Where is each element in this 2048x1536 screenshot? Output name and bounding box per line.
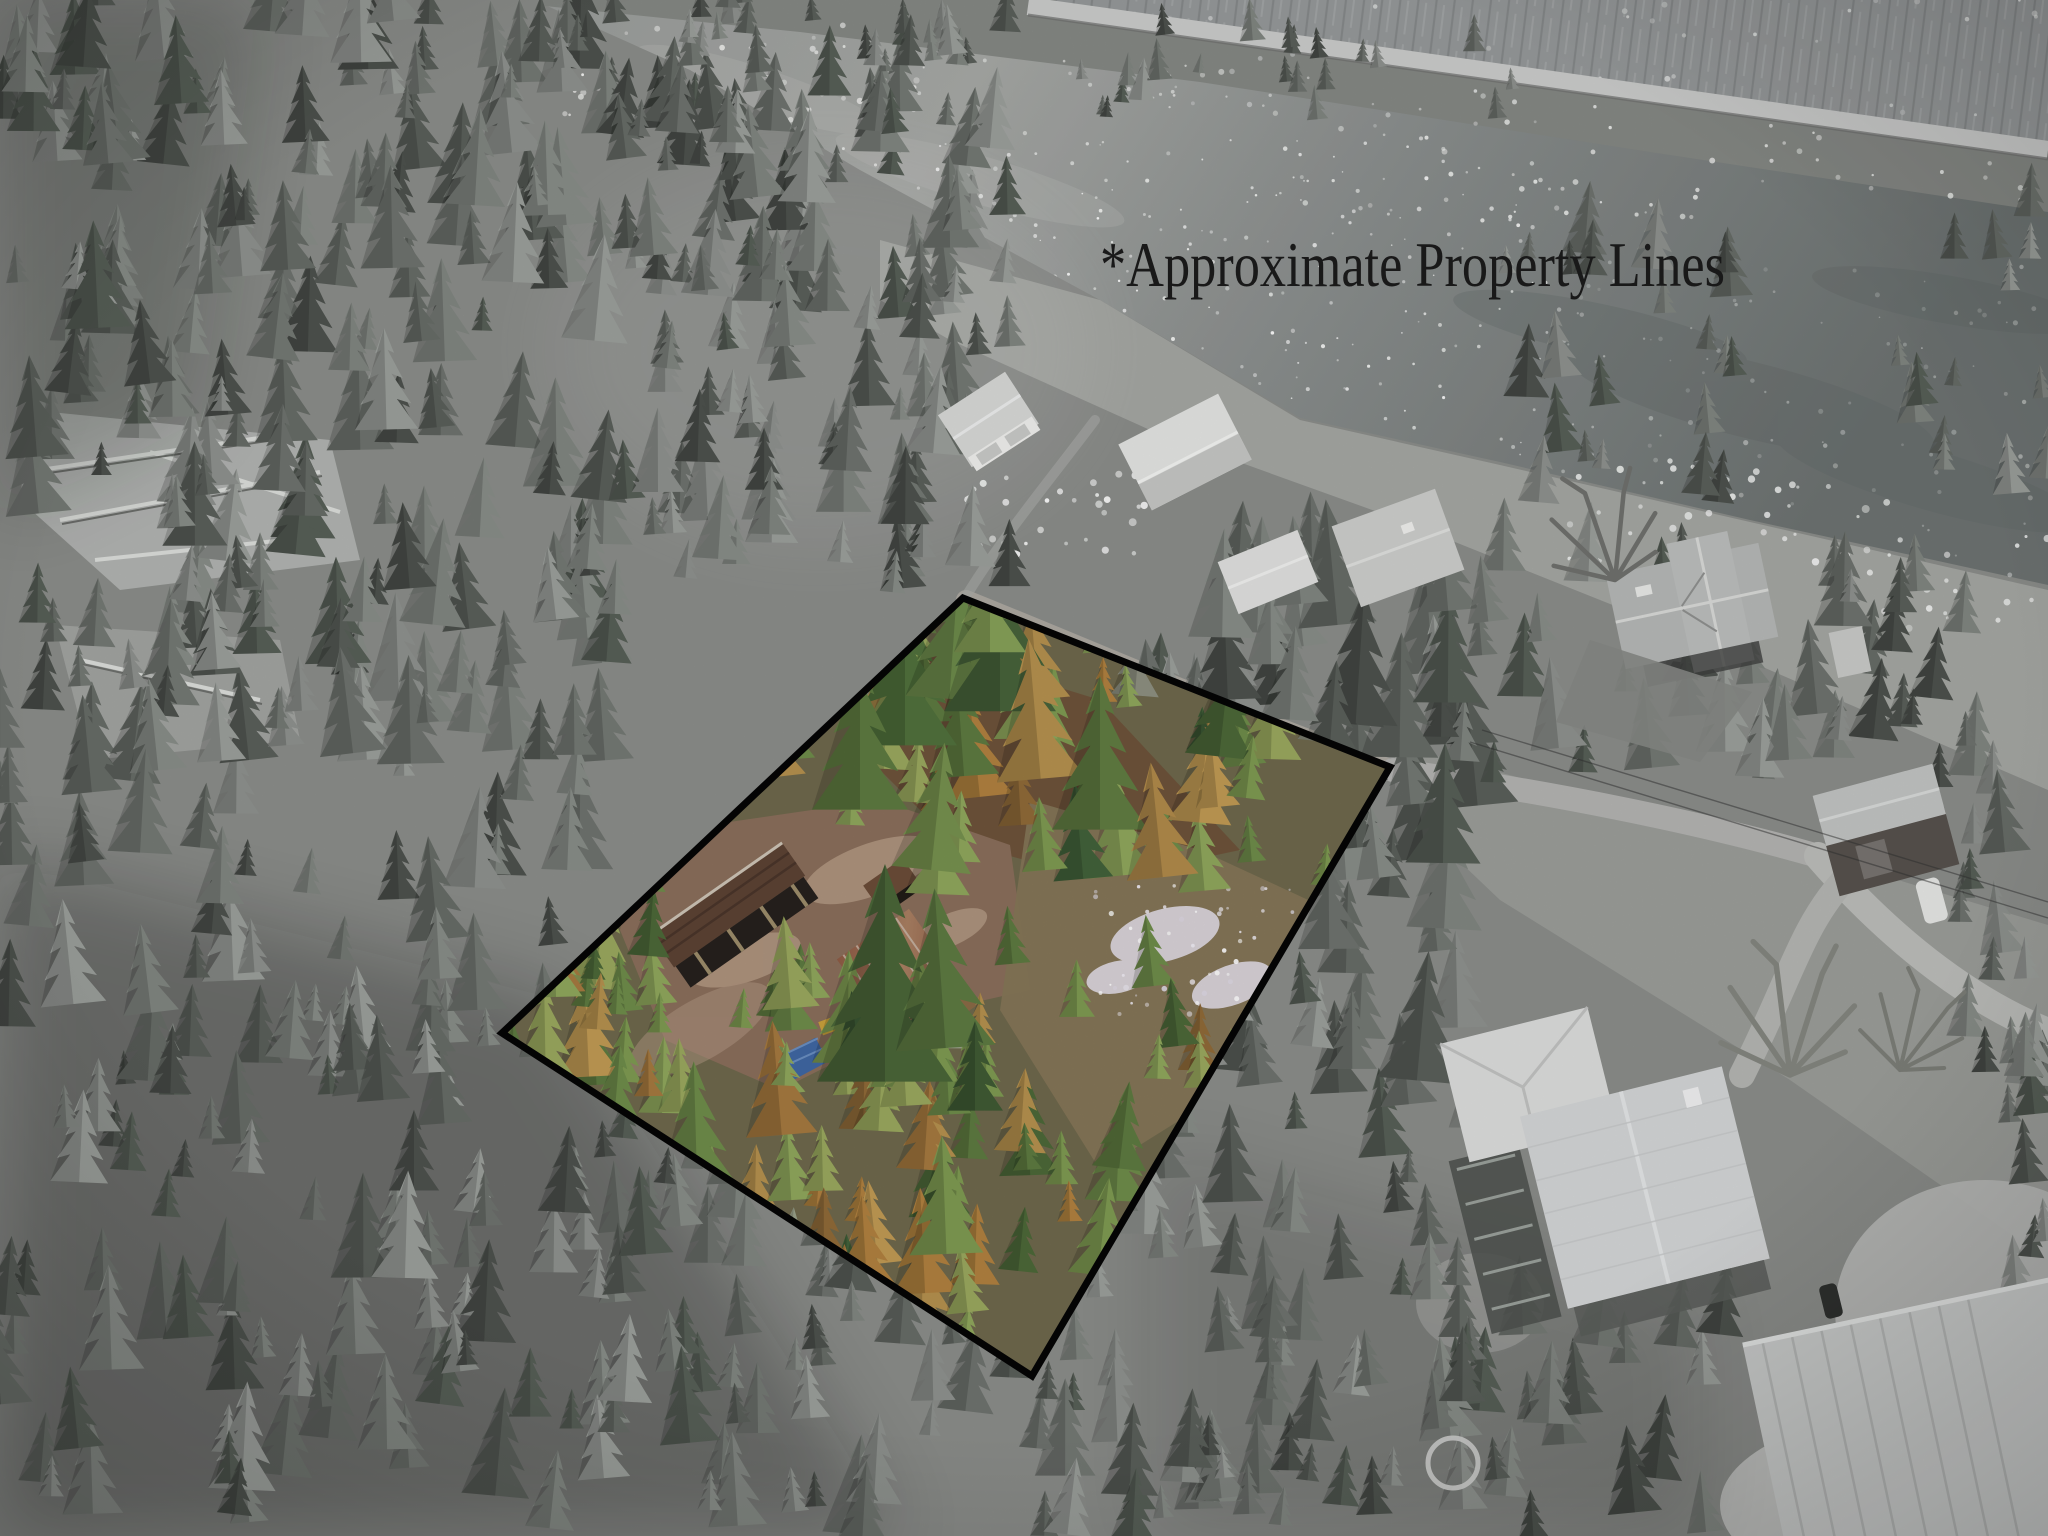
speckle bbox=[1943, 611, 1947, 615]
speckle bbox=[1097, 217, 1100, 220]
speckle bbox=[568, 113, 571, 116]
speckle bbox=[1944, 552, 1950, 558]
speckle bbox=[1180, 209, 1182, 211]
speckle bbox=[2015, 543, 2020, 548]
speckle bbox=[1791, 502, 1794, 505]
speckle bbox=[2004, 392, 2008, 396]
speckle bbox=[1862, 505, 1870, 513]
speckle bbox=[1412, 426, 1416, 430]
speckle bbox=[1498, 308, 1500, 310]
speckle bbox=[1670, 465, 1677, 472]
speckle bbox=[581, 73, 584, 76]
speckle bbox=[1338, 126, 1344, 132]
speckle bbox=[1733, 299, 1737, 303]
speckle bbox=[1770, 439, 1773, 442]
speckle bbox=[1534, 120, 1537, 123]
speckle bbox=[1373, 124, 1377, 128]
speckle bbox=[1356, 189, 1360, 193]
speckle bbox=[1218, 69, 1224, 75]
speckle bbox=[1983, 175, 1987, 179]
speckle bbox=[1171, 337, 1175, 341]
speckle bbox=[1545, 331, 1548, 334]
speckle bbox=[1664, 76, 1670, 82]
speckle bbox=[1926, 605, 1933, 612]
speckle bbox=[1519, 454, 1521, 456]
speckle bbox=[1372, 103, 1374, 105]
speckle bbox=[1883, 499, 1890, 506]
speckle bbox=[1099, 991, 1103, 995]
speckle bbox=[2031, 306, 2036, 311]
speckle bbox=[1863, 547, 1870, 554]
speckle bbox=[1812, 558, 1819, 565]
speckle bbox=[917, 91, 921, 95]
speckle bbox=[1500, 438, 1503, 441]
speckle bbox=[1137, 885, 1140, 888]
speckle bbox=[1965, 17, 1970, 22]
speckle bbox=[1230, 139, 1232, 141]
speckle bbox=[1300, 175, 1304, 179]
speckle bbox=[2007, 573, 2012, 578]
speckle bbox=[1516, 223, 1520, 227]
speckle bbox=[1122, 974, 1125, 977]
speckle bbox=[1424, 176, 1428, 180]
speckle bbox=[578, 94, 584, 100]
speckle bbox=[1306, 180, 1309, 183]
speckle bbox=[1786, 401, 1789, 404]
speckle bbox=[1195, 1001, 1199, 1005]
speckle bbox=[1617, 466, 1624, 473]
speckle bbox=[1057, 488, 1063, 494]
speckle bbox=[1208, 973, 1211, 976]
speckle bbox=[1848, 401, 1851, 404]
speckle bbox=[1167, 932, 1171, 936]
speckle bbox=[1145, 179, 1149, 183]
speckle bbox=[1512, 99, 1517, 104]
speckle bbox=[810, 46, 816, 52]
speckle bbox=[1090, 479, 1097, 486]
speckle bbox=[1557, 307, 1561, 311]
speckle bbox=[1222, 948, 1227, 953]
speckle bbox=[840, 23, 846, 29]
speckle bbox=[1662, 2, 1668, 8]
speckle bbox=[1109, 984, 1111, 986]
speckle bbox=[2023, 523, 2025, 525]
speckle bbox=[1448, 172, 1453, 177]
property-lines-disclaimer: *Approximate Property Lines bbox=[1100, 229, 1725, 300]
speckle bbox=[1127, 87, 1131, 91]
speckle bbox=[1201, 347, 1203, 349]
speckle bbox=[1300, 199, 1302, 201]
speckle bbox=[1379, 382, 1382, 385]
speckle bbox=[1648, 444, 1652, 448]
speckle bbox=[1538, 178, 1543, 183]
speckle bbox=[1291, 910, 1295, 914]
speckle bbox=[1425, 136, 1429, 140]
speckle bbox=[1512, 173, 1515, 176]
speckle bbox=[1922, 307, 1926, 311]
speckle bbox=[1573, 179, 1579, 185]
speckle bbox=[1886, 342, 1890, 346]
speckle bbox=[1101, 510, 1107, 516]
speckle bbox=[1753, 33, 1757, 37]
speckle bbox=[1473, 121, 1477, 125]
speckle bbox=[1504, 119, 1510, 125]
speckle bbox=[1686, 388, 1690, 392]
speckle bbox=[1982, 313, 1987, 318]
speckle bbox=[1195, 911, 1197, 913]
speckle bbox=[923, 66, 925, 68]
speckle bbox=[1239, 931, 1241, 933]
speckle bbox=[1264, 887, 1267, 890]
speckle bbox=[1757, 454, 1761, 458]
speckle bbox=[1037, 527, 1044, 534]
speckle bbox=[1084, 538, 1088, 542]
speckle bbox=[1927, 529, 1929, 531]
speckle bbox=[1796, 486, 1799, 489]
speckle bbox=[1924, 281, 1926, 283]
speckle bbox=[1247, 102, 1252, 107]
speckle bbox=[1622, 8, 1628, 14]
speckle bbox=[1387, 213, 1390, 216]
speckle bbox=[1576, 474, 1582, 480]
speckle bbox=[1797, 148, 1803, 154]
speckle bbox=[1749, 300, 1752, 303]
speckle bbox=[1567, 343, 1569, 345]
speckle bbox=[2029, 598, 2033, 602]
speckle bbox=[1234, 959, 1239, 964]
speckle bbox=[1764, 512, 1770, 518]
speckle bbox=[1070, 161, 1074, 165]
speckle bbox=[1419, 108, 1422, 111]
speckle bbox=[1130, 1002, 1133, 1005]
speckle bbox=[1514, 211, 1516, 213]
speckle bbox=[1166, 151, 1170, 155]
speckle bbox=[1137, 505, 1141, 509]
speckle bbox=[1848, 9, 1852, 13]
speckle bbox=[1068, 72, 1072, 76]
speckle bbox=[1653, 458, 1658, 463]
speckle bbox=[654, 26, 660, 32]
speckle bbox=[1113, 986, 1117, 990]
speckle bbox=[1217, 911, 1222, 916]
speckle bbox=[1093, 894, 1098, 899]
speckle bbox=[1145, 1003, 1149, 1007]
speckle bbox=[1305, 342, 1307, 344]
speckle bbox=[1671, 74, 1675, 78]
speckle bbox=[1609, 126, 1612, 129]
speckle bbox=[1816, 135, 1822, 141]
speckle bbox=[1649, 416, 1654, 421]
speckle bbox=[1383, 178, 1385, 180]
speckle bbox=[2006, 322, 2008, 324]
speckle bbox=[625, 31, 629, 35]
speckle bbox=[1775, 486, 1782, 493]
speckle bbox=[1530, 161, 1534, 165]
speckle bbox=[1173, 94, 1176, 97]
speckle bbox=[1191, 944, 1195, 948]
speckle bbox=[1924, 365, 1929, 370]
speckle bbox=[1628, 531, 1632, 535]
speckle bbox=[1306, 387, 1310, 391]
speckle bbox=[1023, 131, 1027, 135]
speckle bbox=[1693, 195, 1698, 200]
speckle bbox=[1438, 323, 1442, 327]
speckle bbox=[1024, 542, 1028, 546]
speckle bbox=[1645, 211, 1647, 213]
speckle bbox=[1474, 89, 1478, 93]
speckle bbox=[1072, 498, 1077, 503]
speckle bbox=[1680, 214, 1686, 220]
speckle bbox=[1442, 396, 1445, 399]
speckle bbox=[1591, 426, 1594, 429]
speckle bbox=[939, 145, 941, 147]
speckle bbox=[1889, 103, 1893, 107]
speckle bbox=[1291, 329, 1295, 333]
speckle bbox=[1953, 589, 1958, 594]
speckle bbox=[812, 36, 816, 40]
speckle bbox=[1548, 187, 1551, 190]
speckle bbox=[1273, 111, 1278, 116]
speckle bbox=[1104, 496, 1111, 503]
speckle bbox=[1404, 410, 1406, 412]
speckle bbox=[1368, 203, 1373, 208]
speckle bbox=[1840, 430, 1845, 435]
speckle bbox=[1102, 547, 1109, 554]
speckle bbox=[1567, 521, 1573, 527]
speckle bbox=[1564, 211, 1569, 216]
speckle bbox=[1424, 312, 1427, 315]
aerial-photo: *Approximate Property Lines bbox=[0, 0, 2048, 1536]
speckle bbox=[1246, 201, 1248, 203]
speckle bbox=[1769, 124, 1773, 128]
speckle bbox=[1129, 518, 1137, 526]
speckle bbox=[1255, 194, 1258, 197]
speckle bbox=[1871, 174, 1873, 176]
speckle bbox=[1225, 95, 1227, 97]
speckle bbox=[1298, 153, 1301, 156]
speckle bbox=[1977, 308, 1981, 312]
speckle bbox=[1441, 160, 1444, 163]
speckle bbox=[2019, 265, 2023, 269]
speckle bbox=[1201, 159, 1203, 161]
speckle bbox=[1438, 384, 1441, 387]
speckle bbox=[1533, 408, 1536, 411]
speckle bbox=[1444, 198, 1449, 203]
speckle bbox=[1208, 16, 1213, 21]
speckle bbox=[1929, 453, 1933, 457]
speckle bbox=[1789, 481, 1796, 488]
speckle bbox=[1508, 215, 1512, 219]
speckle bbox=[1787, 504, 1791, 508]
speckle bbox=[1853, 268, 1857, 272]
speckle bbox=[1954, 311, 1958, 315]
speckle bbox=[1898, 537, 1903, 542]
speckle bbox=[1643, 338, 1645, 340]
speckle bbox=[1190, 979, 1196, 985]
speckle bbox=[1761, 180, 1764, 183]
speckle bbox=[1093, 287, 1096, 290]
speckle bbox=[1702, 371, 1705, 374]
speckle bbox=[1307, 76, 1310, 79]
speckle bbox=[1303, 180, 1305, 182]
speckle bbox=[1162, 986, 1168, 992]
speckle bbox=[1934, 470, 1938, 474]
speckle bbox=[1271, 331, 1275, 335]
speckle bbox=[1132, 551, 1136, 555]
speckle bbox=[1342, 171, 1344, 173]
speckle bbox=[1240, 365, 1243, 368]
speckle bbox=[1753, 468, 1760, 475]
speckle bbox=[1944, 578, 1948, 582]
speckle bbox=[1477, 345, 1481, 349]
speckle bbox=[1951, 430, 1956, 435]
speckle bbox=[1826, 484, 1831, 489]
speckle bbox=[1591, 149, 1596, 154]
speckle bbox=[1734, 303, 1737, 306]
speckle bbox=[1761, 529, 1767, 535]
speckle bbox=[1561, 187, 1565, 191]
speckle bbox=[2032, 11, 2038, 17]
speckle bbox=[1816, 158, 1819, 161]
speckle bbox=[562, 111, 567, 116]
speckle bbox=[1296, 140, 1298, 142]
speckle bbox=[2022, 400, 2026, 404]
speckle bbox=[1291, 397, 1293, 399]
speckle bbox=[1750, 378, 1754, 382]
speckle bbox=[1399, 217, 1401, 219]
speckle bbox=[1626, 15, 1629, 18]
speckle bbox=[1441, 147, 1445, 151]
speckle bbox=[1163, 905, 1166, 908]
speckle bbox=[1129, 927, 1132, 930]
speckle bbox=[1034, 223, 1038, 227]
speckle bbox=[1099, 209, 1103, 213]
speckle bbox=[1921, 347, 1923, 349]
speckle bbox=[1095, 196, 1098, 199]
speckle bbox=[1100, 144, 1101, 145]
speckle bbox=[1773, 290, 1776, 293]
speckle bbox=[1462, 194, 1464, 196]
speckle bbox=[1007, 153, 1011, 157]
speckle bbox=[2025, 464, 2029, 468]
speckle bbox=[1112, 189, 1113, 190]
speckle bbox=[1995, 618, 2000, 623]
speckle bbox=[1253, 373, 1257, 377]
speckle bbox=[1572, 423, 1574, 425]
speckle bbox=[1689, 215, 1693, 219]
speckle bbox=[1763, 267, 1767, 271]
speckle bbox=[1337, 359, 1339, 361]
speckle bbox=[1955, 555, 1957, 557]
speckle bbox=[2018, 454, 2023, 459]
speckle bbox=[1104, 179, 1107, 182]
speckle bbox=[1600, 201, 1602, 203]
speckle bbox=[1818, 409, 1823, 414]
speckle bbox=[1390, 209, 1393, 212]
speckle bbox=[1793, 533, 1796, 536]
speckle bbox=[1286, 340, 1290, 344]
speckle bbox=[2004, 599, 2011, 606]
speckle bbox=[1519, 186, 1525, 192]
speckle bbox=[1690, 327, 1692, 329]
speckle bbox=[1229, 69, 1235, 75]
speckle bbox=[1739, 493, 1744, 498]
speckle bbox=[1580, 313, 1584, 317]
speckle bbox=[1143, 213, 1146, 216]
speckle bbox=[1219, 907, 1224, 912]
speckle bbox=[1872, 488, 1876, 492]
speckle bbox=[1812, 132, 1815, 135]
speckle bbox=[1682, 33, 1686, 37]
speckle bbox=[1922, 525, 1924, 527]
speckle bbox=[1635, 213, 1639, 217]
speckle bbox=[1688, 420, 1693, 425]
speckle bbox=[1520, 442, 1522, 444]
speckle bbox=[1879, 316, 1881, 318]
speckle bbox=[1670, 360, 1672, 362]
speckle bbox=[1094, 890, 1098, 894]
speckle bbox=[1412, 363, 1415, 366]
speckle bbox=[1297, 362, 1299, 364]
speckle bbox=[1419, 136, 1423, 140]
speckle bbox=[989, 536, 996, 543]
speckle bbox=[1660, 481, 1663, 484]
speckle bbox=[1867, 570, 1873, 576]
speckle bbox=[1833, 463, 1838, 468]
speckle bbox=[1764, 391, 1766, 393]
speckle bbox=[1208, 306, 1210, 308]
speckle bbox=[1184, 65, 1186, 67]
speckle bbox=[1480, 93, 1485, 98]
speckle bbox=[1974, 113, 1977, 116]
speckle bbox=[1064, 542, 1068, 546]
speckle bbox=[1034, 152, 1037, 155]
speckle bbox=[1782, 141, 1786, 145]
speckle bbox=[1823, 443, 1828, 448]
speckle bbox=[1123, 985, 1129, 991]
speckle bbox=[1172, 884, 1175, 887]
speckle bbox=[1649, 203, 1653, 207]
speckle bbox=[1329, 301, 1332, 304]
speckle bbox=[1252, 936, 1256, 940]
speckle bbox=[1187, 1011, 1193, 1017]
speckle bbox=[1174, 86, 1177, 89]
speckle bbox=[1261, 909, 1265, 913]
speckle bbox=[1283, 146, 1288, 151]
speckle bbox=[1650, 18, 1655, 23]
speckle bbox=[1216, 311, 1219, 314]
speckle bbox=[1358, 206, 1362, 210]
speckle bbox=[1135, 994, 1137, 996]
speckle bbox=[1417, 207, 1422, 212]
speckle bbox=[1102, 141, 1104, 143]
speckle bbox=[1418, 321, 1420, 323]
speckle bbox=[1145, 910, 1149, 914]
speckle bbox=[1401, 332, 1403, 334]
speckle bbox=[1109, 911, 1114, 916]
speckle bbox=[814, 50, 818, 54]
speckle bbox=[1228, 979, 1233, 984]
speckle bbox=[2013, 320, 2018, 325]
speckle bbox=[1345, 387, 1349, 391]
speckle bbox=[1479, 324, 1482, 327]
speckle bbox=[1279, 192, 1282, 195]
speckle bbox=[1383, 134, 1386, 137]
speckle bbox=[1321, 344, 1325, 348]
speckle bbox=[1466, 171, 1469, 174]
speckle bbox=[1577, 312, 1579, 314]
speckle bbox=[1901, 443, 1904, 446]
